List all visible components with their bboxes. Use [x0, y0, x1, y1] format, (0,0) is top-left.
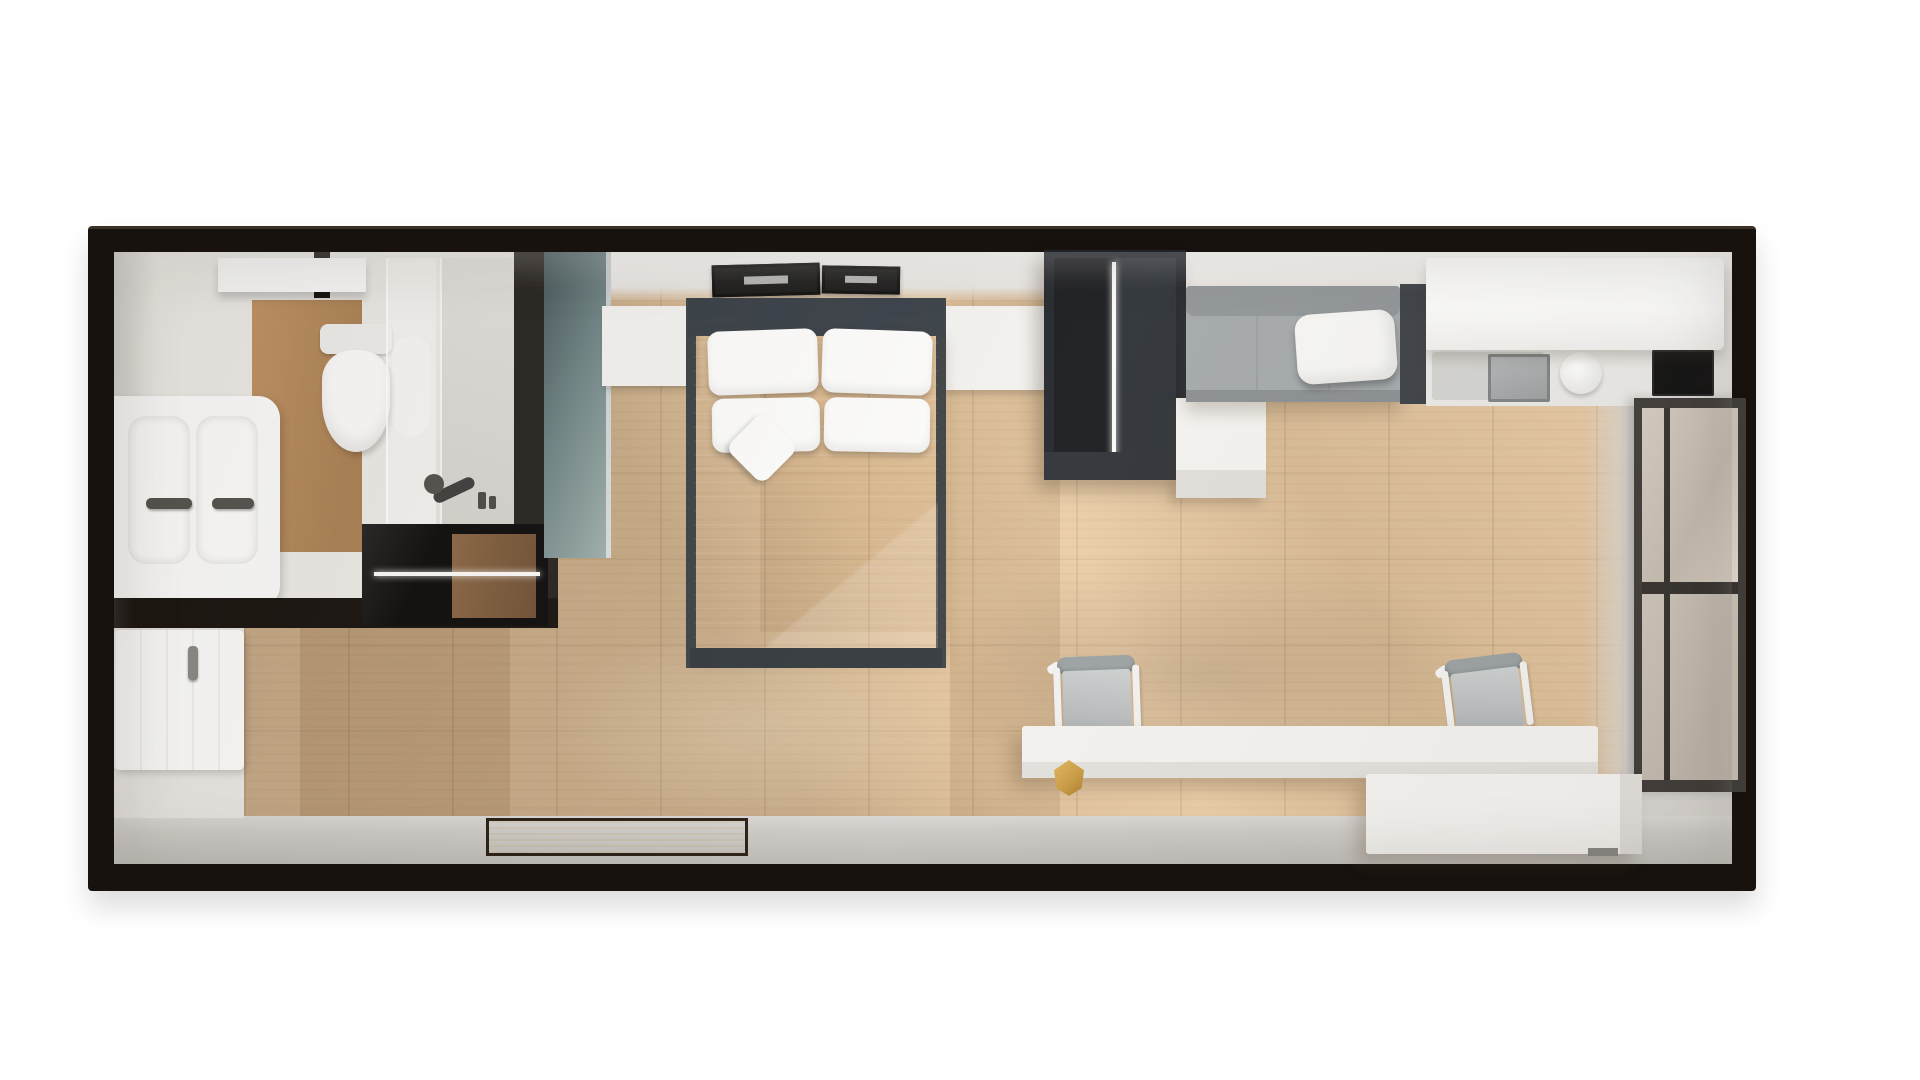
bed-pillow — [824, 397, 931, 453]
bed-pillow — [821, 328, 933, 396]
sage-partition-wall — [544, 252, 611, 558]
kitchen-faucet — [1560, 352, 1602, 394]
sink-basin-left — [128, 416, 190, 564]
sofa-side-table — [1400, 284, 1426, 404]
open-wardrobe — [1044, 250, 1186, 480]
chair-seat — [1062, 669, 1132, 731]
bed-footboard — [690, 648, 942, 668]
cooktop — [1652, 350, 1714, 396]
wall-art-frame-2 — [822, 265, 900, 294]
desk-chair-1 — [1053, 655, 1142, 734]
window-pane-lower — [1642, 594, 1738, 780]
shampoo-bottle — [489, 496, 496, 509]
bed-pillow — [707, 328, 819, 396]
frame-artwork — [845, 276, 877, 283]
window-mullion-vertical — [1664, 408, 1670, 780]
door-handle — [188, 646, 198, 680]
render-canvas — [0, 0, 1920, 1080]
faucet-left — [146, 498, 192, 509]
doormat — [486, 818, 748, 856]
sofa-front-edge — [1186, 390, 1400, 402]
sink-basin-right — [196, 416, 258, 564]
ottoman-front-face — [1176, 470, 1266, 498]
nightstand-left — [602, 306, 694, 386]
sofa-pillow — [1294, 309, 1399, 386]
entry-door — [114, 630, 244, 770]
shelf-led-strip — [374, 572, 540, 576]
desk-chair-2 — [1440, 651, 1535, 737]
frame-artwork — [743, 275, 788, 284]
wall-art-frame-1 — [712, 263, 821, 298]
chair-rail-left — [1053, 667, 1062, 731]
kitchen-upper-cabinet — [1426, 258, 1724, 350]
faucet-right — [212, 498, 254, 509]
nightstand-right — [940, 306, 1044, 390]
shower-head — [424, 474, 444, 494]
toilet — [322, 350, 390, 452]
window-mullion — [1642, 582, 1738, 594]
window — [1634, 398, 1746, 792]
shampoo-bottle — [478, 492, 486, 509]
recessed-shelf-wood-panel — [452, 534, 536, 618]
storage-bench-foot — [1588, 848, 1618, 856]
wardrobe-divider-light — [1112, 262, 1116, 458]
bathroom-wall-shelf — [218, 258, 366, 292]
storage-bench — [1366, 774, 1642, 854]
sink-basin — [1488, 354, 1550, 402]
wardrobe-front-edge — [1044, 452, 1186, 480]
sofa — [1186, 286, 1400, 402]
window-pane-upper — [1642, 408, 1738, 582]
chair-seat — [1450, 666, 1525, 734]
storage-bench-side — [1620, 774, 1642, 854]
